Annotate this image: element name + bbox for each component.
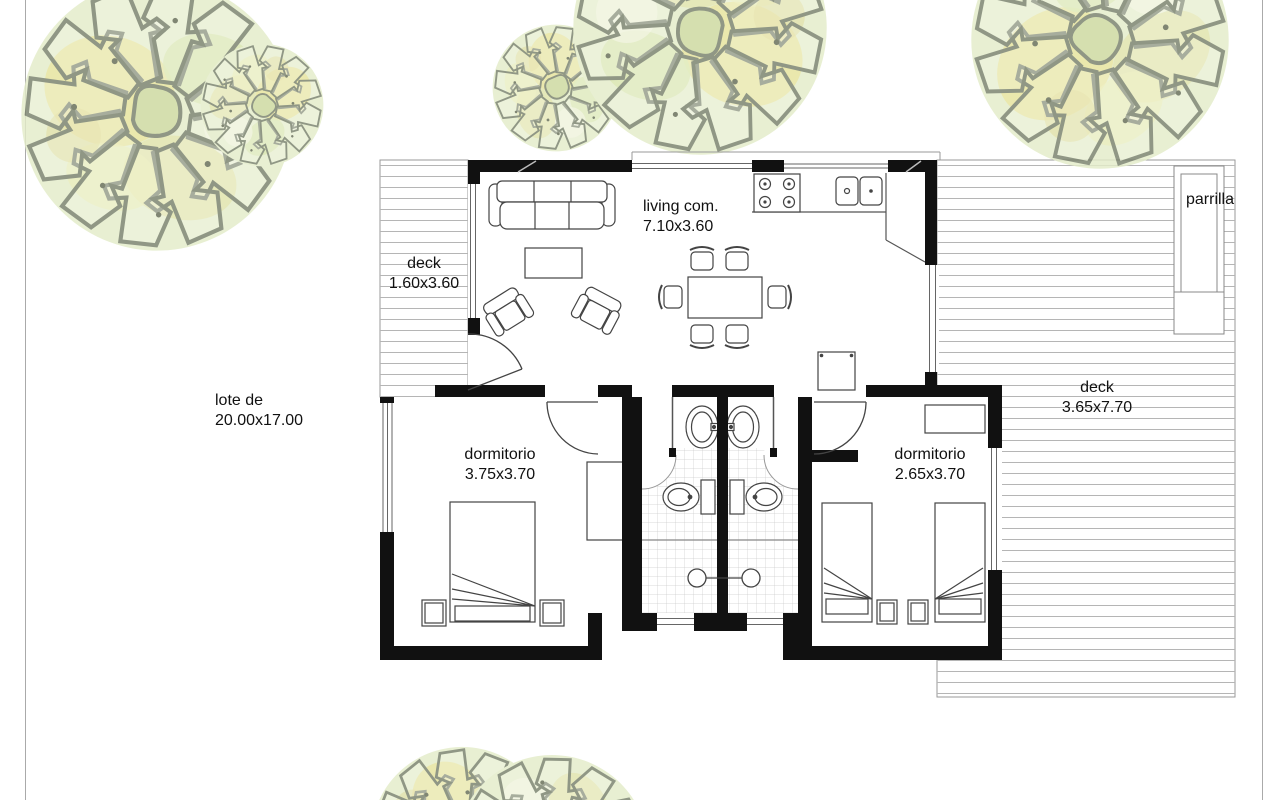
wall bbox=[783, 613, 812, 660]
label-parrilla: parrilla bbox=[1150, 190, 1234, 210]
wall bbox=[694, 613, 747, 631]
wall bbox=[798, 397, 812, 631]
floor-plan-page: living com. 7.10x3.60 deck 1.60x3.60 dec… bbox=[0, 0, 1280, 800]
nightstand bbox=[908, 600, 928, 624]
wall bbox=[380, 397, 394, 403]
nightstand bbox=[540, 600, 564, 626]
wall bbox=[468, 318, 480, 335]
wall bbox=[588, 613, 602, 660]
wall bbox=[770, 448, 777, 457]
wall bbox=[627, 613, 657, 631]
wall bbox=[672, 385, 774, 397]
wall bbox=[925, 372, 937, 397]
wall bbox=[752, 160, 784, 172]
wall bbox=[812, 450, 858, 462]
coffee-table bbox=[525, 248, 582, 278]
wall bbox=[468, 160, 632, 172]
toilet bbox=[663, 480, 715, 514]
window bbox=[468, 184, 480, 318]
deck-right-dims: 3.65x7.70 bbox=[1037, 398, 1157, 418]
washbasin bbox=[727, 406, 759, 448]
lot-dims: 20.00x17.00 bbox=[215, 411, 303, 431]
bedroom-left-dims: 3.75x3.70 bbox=[440, 465, 560, 485]
shower-head bbox=[742, 569, 760, 587]
deck-left-name: deck bbox=[374, 254, 474, 274]
wall bbox=[622, 397, 642, 631]
wall bbox=[810, 646, 1002, 660]
shelf bbox=[925, 405, 985, 433]
label-bedroom-right: dormitorio 2.65x3.70 bbox=[870, 445, 990, 485]
wall bbox=[988, 397, 1002, 448]
bedroom-left-name: dormitorio bbox=[440, 445, 560, 465]
stove bbox=[754, 174, 800, 212]
nightstand bbox=[422, 600, 446, 626]
wall bbox=[888, 160, 937, 172]
wall bbox=[380, 646, 602, 660]
wall bbox=[925, 172, 937, 265]
sliding-door-window bbox=[926, 265, 939, 372]
wall bbox=[988, 570, 1002, 660]
wall bbox=[669, 448, 676, 457]
window bbox=[657, 613, 694, 631]
nightstand bbox=[877, 600, 897, 624]
bedroom-right-dims: 2.65x3.70 bbox=[870, 465, 990, 485]
window bbox=[632, 160, 752, 172]
deck-right-name: deck bbox=[1037, 378, 1157, 398]
window bbox=[747, 613, 783, 631]
single-bed bbox=[822, 503, 872, 622]
wall bbox=[717, 397, 728, 631]
single-bed bbox=[935, 503, 985, 622]
parrilla-name: parrilla bbox=[1150, 190, 1234, 210]
label-deck-left: deck 1.60x3.60 bbox=[374, 254, 474, 294]
label-deck-right: deck 3.65x7.70 bbox=[1037, 378, 1157, 418]
wall bbox=[598, 385, 632, 397]
sofa bbox=[489, 181, 615, 229]
living-room-dims: 7.10x3.60 bbox=[643, 217, 719, 237]
wall bbox=[435, 385, 545, 397]
toilet bbox=[730, 480, 782, 514]
wardrobe bbox=[587, 462, 623, 540]
deck-left-dims: 1.60x3.60 bbox=[374, 274, 474, 294]
double-bed bbox=[450, 502, 535, 622]
window bbox=[784, 160, 888, 172]
window bbox=[988, 448, 1002, 570]
label-lot: lote de 20.00x17.00 bbox=[215, 391, 303, 431]
lot-name: lote de bbox=[215, 391, 303, 411]
wall bbox=[468, 160, 480, 184]
bedroom-right-name: dormitorio bbox=[870, 445, 990, 465]
washbasin bbox=[686, 406, 718, 448]
label-living: living com. 7.10x3.60 bbox=[643, 197, 719, 237]
window bbox=[380, 402, 394, 532]
dining-table bbox=[688, 277, 762, 318]
side-table bbox=[818, 352, 855, 390]
wall bbox=[380, 532, 394, 660]
label-bedroom-left: dormitorio 3.75x3.70 bbox=[440, 445, 560, 485]
living-room-name: living com. bbox=[643, 197, 719, 217]
shower-head bbox=[688, 569, 706, 587]
